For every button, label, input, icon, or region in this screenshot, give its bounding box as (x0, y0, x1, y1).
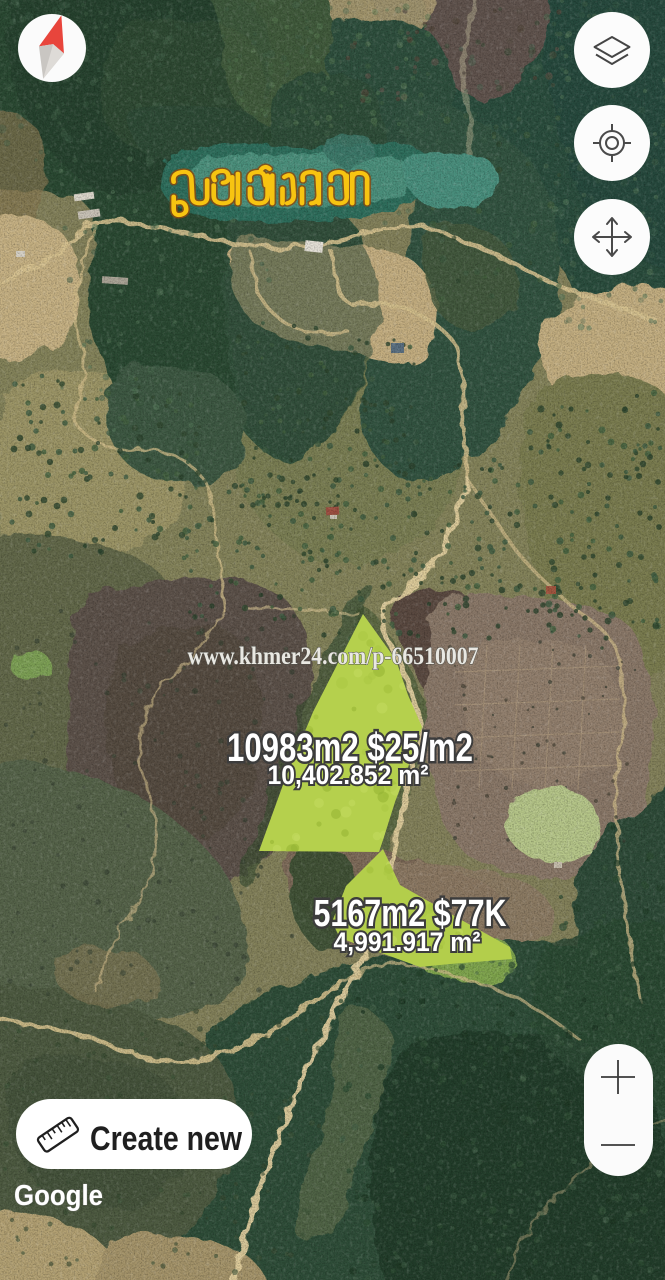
svg-text:10,402.852 m²: 10,402.852 m² (268, 760, 429, 790)
svg-text:Create new: Create new (90, 1120, 242, 1158)
svg-text:4,991.917 m²: 4,991.917 m² (334, 927, 481, 957)
svg-text:Google: Google (14, 1180, 103, 1212)
svg-text:www.khmer24.com/p-66510007: www.khmer24.com/p-66510007 (188, 643, 479, 670)
